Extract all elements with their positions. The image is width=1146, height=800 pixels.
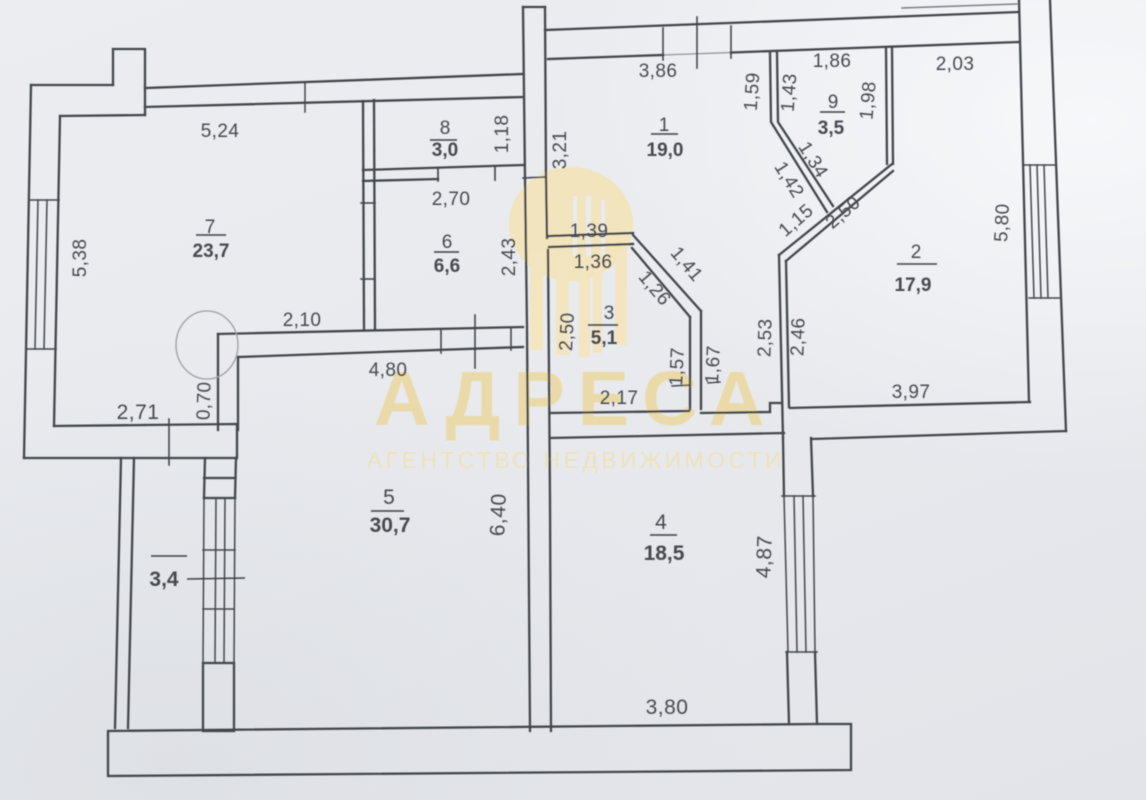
svg-text:1,18: 1,18 (492, 115, 513, 154)
svg-text:1,98: 1,98 (856, 80, 880, 120)
svg-text:2,53: 2,53 (754, 318, 776, 357)
svg-text:2,03: 2,03 (936, 54, 975, 75)
svg-text:8: 8 (440, 118, 451, 139)
svg-text:0,70: 0,70 (193, 381, 215, 420)
svg-text:3,5: 3,5 (818, 118, 845, 139)
svg-text:19,0: 19,0 (647, 140, 684, 161)
svg-text:3,80: 3,80 (646, 696, 689, 719)
svg-text:9: 9 (828, 92, 839, 113)
svg-text:3,21: 3,21 (550, 131, 571, 170)
svg-text:5: 5 (383, 486, 395, 509)
svg-text:5,38: 5,38 (70, 239, 91, 278)
svg-text:3,4: 3,4 (149, 568, 179, 591)
svg-text:1,57: 1,57 (666, 347, 689, 387)
svg-text:30,7: 30,7 (370, 514, 411, 537)
svg-text:1,42: 1,42 (770, 158, 808, 202)
svg-text:2,70: 2,70 (432, 189, 471, 210)
svg-text:6,6: 6,6 (434, 256, 460, 277)
svg-text:3,97: 3,97 (892, 382, 931, 403)
svg-text:2,43: 2,43 (499, 238, 520, 277)
svg-text:1,36: 1,36 (574, 252, 613, 273)
svg-text:3,0: 3,0 (432, 140, 458, 161)
svg-text:2,17: 2,17 (600, 388, 639, 409)
svg-text:4: 4 (655, 511, 667, 534)
svg-text:5,24: 5,24 (201, 121, 240, 142)
svg-text:4,87: 4,87 (752, 535, 776, 579)
svg-text:АГЕНТСТВО НЕДВИЖИМОСТИ: АГЕНТСТВО НЕДВИЖИМОСТИ (367, 447, 785, 473)
svg-text:2,50: 2,50 (556, 312, 579, 352)
svg-text:1,43: 1,43 (778, 73, 802, 113)
svg-text:1,15: 1,15 (775, 200, 818, 241)
svg-text:2,71: 2,71 (117, 401, 160, 424)
svg-text:2,46: 2,46 (787, 317, 809, 356)
svg-text:23,7: 23,7 (193, 241, 230, 262)
svg-text:17,9: 17,9 (895, 275, 932, 296)
svg-text:4,80: 4,80 (369, 360, 408, 381)
svg-text:1,39: 1,39 (570, 221, 609, 242)
svg-text:1,86: 1,86 (813, 51, 852, 72)
svg-text:2,10: 2,10 (283, 310, 322, 331)
svg-text:5,1: 5,1 (591, 328, 618, 349)
svg-text:18,5: 18,5 (644, 542, 685, 565)
svg-text:1: 1 (659, 115, 670, 136)
svg-text:1,67: 1,67 (702, 345, 725, 385)
svg-text:3,86: 3,86 (639, 61, 678, 82)
svg-text:2: 2 (911, 242, 922, 263)
svg-text:3: 3 (604, 303, 615, 324)
svg-text:5,80: 5,80 (991, 203, 1014, 243)
svg-text:1,59: 1,59 (741, 72, 765, 112)
svg-text:6,40: 6,40 (486, 493, 510, 537)
svg-text:6: 6 (442, 232, 453, 253)
